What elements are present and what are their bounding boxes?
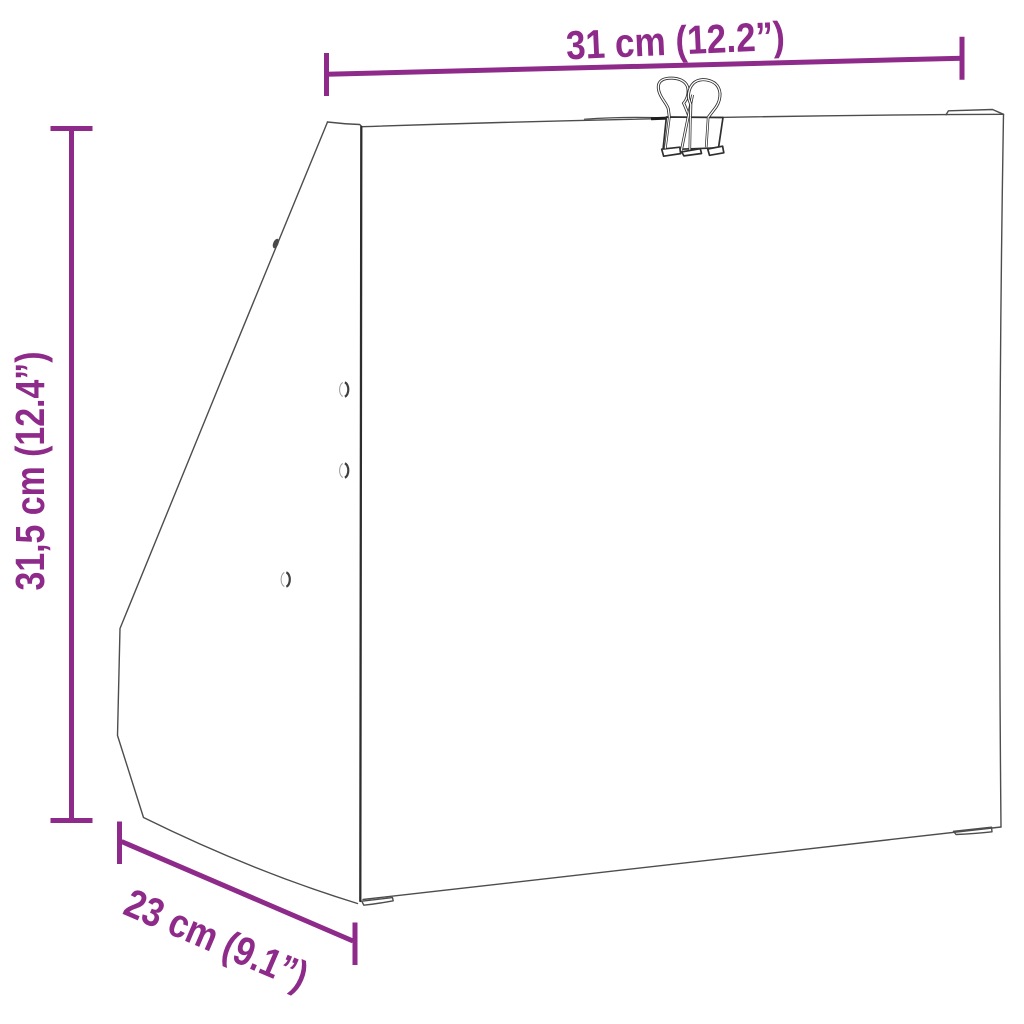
svg-text:31 cm (12.2”): 31 cm (12.2”) xyxy=(565,13,786,69)
svg-text:23 cm (9.1”): 23 cm (9.1”) xyxy=(118,879,315,998)
svg-text:31,5 cm (12.4”): 31,5 cm (12.4”) xyxy=(7,352,53,591)
